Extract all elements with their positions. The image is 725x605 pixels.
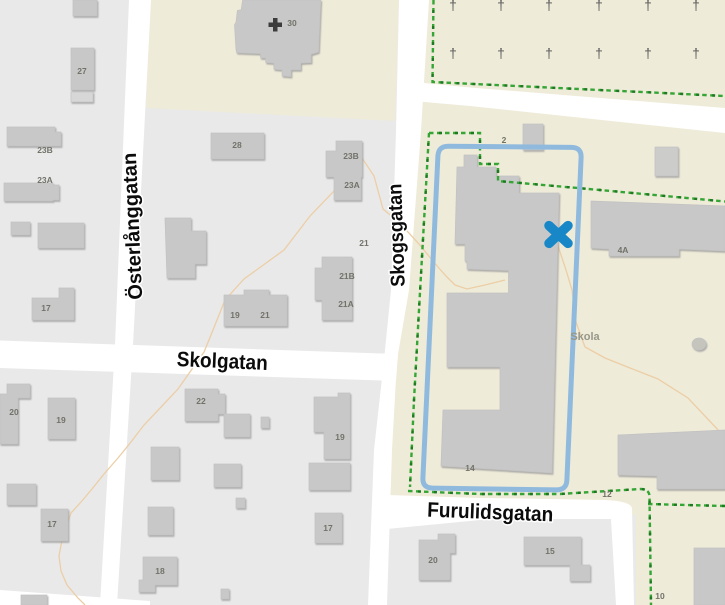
- svg-text:4A: 4A: [618, 245, 629, 255]
- svg-text:Skolgatan: Skolgatan: [176, 348, 268, 375]
- svg-text:23B: 23B: [37, 145, 53, 155]
- svg-text:19: 19: [56, 415, 66, 425]
- svg-text:27: 27: [77, 66, 87, 76]
- svg-text:21: 21: [359, 238, 369, 248]
- svg-text:18: 18: [155, 566, 165, 576]
- svg-text:†: †: [449, 0, 457, 13]
- svg-text:14: 14: [465, 463, 475, 473]
- svg-text:†: †: [644, 46, 652, 61]
- svg-text:†: †: [545, 46, 553, 61]
- svg-text:17: 17: [41, 303, 51, 313]
- svg-text:23A: 23A: [344, 180, 360, 190]
- svg-text:21B: 21B: [339, 271, 355, 281]
- svg-text:Skogsgatan: Skogsgatan: [384, 183, 410, 287]
- svg-text:†: †: [692, 46, 700, 61]
- svg-text:†: †: [449, 46, 457, 61]
- svg-text:19: 19: [230, 310, 240, 320]
- svg-text:17: 17: [323, 523, 333, 533]
- svg-text:23B: 23B: [343, 151, 359, 161]
- svg-text:30: 30: [287, 18, 297, 28]
- svg-text:22: 22: [196, 396, 206, 406]
- svg-text:21A: 21A: [338, 299, 354, 309]
- svg-text:†: †: [692, 0, 700, 13]
- svg-text:23A: 23A: [37, 175, 53, 185]
- svg-text:†: †: [595, 46, 603, 61]
- svg-text:Skola: Skola: [570, 331, 600, 343]
- svg-text:15: 15: [545, 546, 555, 556]
- svg-text:Furulidsgatan: Furulidsgatan: [427, 499, 554, 527]
- svg-text:†: †: [497, 46, 505, 61]
- svg-text:†: †: [644, 0, 652, 13]
- svg-text:†: †: [545, 0, 553, 13]
- svg-text:17: 17: [47, 519, 57, 529]
- svg-text:20: 20: [428, 555, 438, 565]
- svg-text:21: 21: [260, 310, 270, 320]
- svg-text:10: 10: [655, 591, 665, 601]
- svg-text:19: 19: [335, 432, 345, 442]
- svg-text:†: †: [497, 0, 505, 13]
- svg-text:28: 28: [232, 140, 242, 150]
- svg-text:†: †: [595, 0, 603, 13]
- svg-text:2: 2: [502, 135, 507, 145]
- svg-text:20: 20: [9, 407, 19, 417]
- svg-text:12: 12: [602, 489, 612, 499]
